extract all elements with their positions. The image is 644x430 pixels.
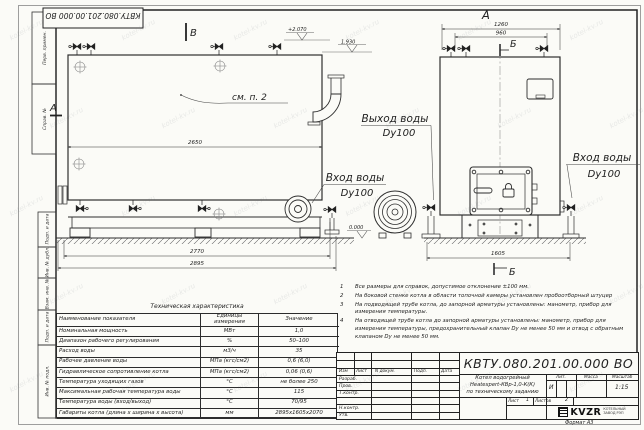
table-cell: °С xyxy=(201,388,259,398)
table-cell: МВт xyxy=(201,327,259,337)
note-text: На отводящей трубе котла до запорной арм… xyxy=(355,318,636,341)
margin-label: Взам. инв. № xyxy=(45,278,51,309)
kvzr-logo-word: KVZR xyxy=(570,407,601,418)
table-cell: МПа (кгс/см2) xyxy=(201,368,259,378)
notes-list: 1 Все размеры для справок, допустимое от… xyxy=(340,284,636,343)
view-label-a: А xyxy=(481,8,490,22)
product-name-line: Котел водогрейный xyxy=(475,375,529,382)
view-label-b: В xyxy=(190,28,197,39)
table-cell: м3/ч xyxy=(201,347,259,357)
col-header-name: Наименование показателя xyxy=(57,314,201,327)
ground-hatch-left xyxy=(56,238,354,244)
top-corner-stamp: КВТУ.080.201.00.000 ВО xyxy=(43,8,143,28)
tb-row-utv: Утв. xyxy=(339,413,349,418)
top-stamp-number: КВТУ.080.201.00.000 ВО xyxy=(45,11,140,20)
elevation-1930: 1.930 xyxy=(341,40,355,46)
title-block: Изм Лист N докум. Подп. Дата Разраб. Про… xyxy=(336,352,639,420)
elevation-2070: +2.070 xyxy=(288,27,307,33)
kvzr-logo: KVZR КОТЕЛЬНЫЙ ЗАВОД РЭП xyxy=(546,405,638,419)
margin-label: Подп. и дата xyxy=(45,213,51,244)
table-cell: мм xyxy=(201,409,259,419)
see-note-annotation: см. п. 2 xyxy=(180,93,288,103)
tb-mass-label: Масса xyxy=(584,375,598,380)
tb-sheet-label: Лист xyxy=(508,399,519,404)
valve-icon xyxy=(76,200,88,211)
col-header-value: Значение xyxy=(259,314,339,327)
table-cell: Расход воды xyxy=(57,347,201,357)
dim-1605: 1605 xyxy=(491,251,505,257)
note-number: 1 xyxy=(340,284,355,292)
margin-label: Справ. № xyxy=(42,108,48,130)
table-cell: Максимальная рабочая температура воды xyxy=(57,388,201,398)
dim-2650: 2650 xyxy=(188,140,202,146)
table-cell: не более 250 xyxy=(259,378,339,388)
tb-col-podp: Подп. xyxy=(414,369,427,374)
tech-table: Наименование показателя Единицы измерени… xyxy=(56,313,338,418)
margin-label: Перв. примен. xyxy=(42,31,48,65)
tb-scale-value: 1:15 xyxy=(615,384,628,391)
table-cell: Номинальная мощность xyxy=(57,327,201,337)
section-label-b-bottom: Б xyxy=(509,267,516,278)
dimensions xyxy=(58,24,570,271)
water-inlet-left-size: Dy100 xyxy=(341,188,374,199)
table-cell: °С xyxy=(201,378,259,388)
fan-volute xyxy=(374,191,416,238)
water-outlet-size: Dy100 xyxy=(383,128,416,139)
water-inlet-right-label: Вход воды xyxy=(573,152,632,164)
table-cell: % xyxy=(201,337,259,347)
table-cell: 0,6 (6,0) xyxy=(259,358,339,368)
tb-sheets-label: Листов xyxy=(535,399,551,404)
table-cell: Гидравлическое сопротивление котла xyxy=(57,368,201,378)
table-cell: 0,06 (0,6) xyxy=(259,368,339,378)
margin-label: Инв. № дубл. xyxy=(45,247,51,278)
control-panel xyxy=(527,79,553,99)
water-outlet-label: Выход воды xyxy=(362,113,429,125)
tb-col-izm: Изм xyxy=(339,369,348,374)
document-number: КВТУ.080.201.00.000 ВО xyxy=(459,353,638,374)
col-header-units: Единицы измерения xyxy=(201,314,259,327)
drawing-sheet: Перв. примен. Справ. № Подп. и дата Инв.… xyxy=(0,0,644,430)
note-number: 2 xyxy=(340,293,355,301)
table-cell: 50–100 xyxy=(259,337,339,347)
lifting-point-icon xyxy=(73,158,86,171)
valve-icon xyxy=(69,44,81,55)
tb-row-prov: Пров. xyxy=(339,384,352,389)
note-item: 2 На боковой стенке котла в области топо… xyxy=(340,293,636,301)
tb-col-data: Дата xyxy=(441,369,452,374)
margin-column xyxy=(32,12,56,418)
outlet-pipe-bend xyxy=(308,75,344,125)
margin-label: Инв. № подл. xyxy=(45,365,51,396)
note-item: 3 На подводящей трубе котла, до запорной… xyxy=(340,302,636,318)
table-cell: Температура уходящих газов xyxy=(57,378,201,388)
elevation-0000: 0.000 xyxy=(349,225,363,231)
product-name-line: по техническому заданию xyxy=(466,389,538,396)
tb-lit-label: Лит. xyxy=(556,375,566,380)
valve-icon xyxy=(324,207,336,218)
note-text: На подводящей трубе котла, до запорной а… xyxy=(355,302,636,318)
valve-icon xyxy=(129,200,141,211)
note-text: На боковой стенке котла в области топочн… xyxy=(355,293,636,301)
water-inlet-left-label: Вход воды xyxy=(326,172,385,184)
valve-icon xyxy=(536,46,548,57)
lifting-point-icon xyxy=(74,61,87,74)
table-cell: 35 xyxy=(259,347,339,357)
dim-2895: 2895 xyxy=(190,261,204,267)
tb-row-tkontr: Т.контр. xyxy=(339,391,359,396)
section-label-b-top: Б xyxy=(510,39,517,50)
note-text: Все размеры для справок, допустимое откл… xyxy=(355,284,636,292)
table-cell: 115 xyxy=(259,388,339,398)
note-number: 3 xyxy=(340,302,355,318)
table-cell: Температура воды (вход/выход) xyxy=(57,399,201,409)
boiler-body-side xyxy=(68,55,322,200)
tb-sheets-value: 2 xyxy=(565,398,568,403)
note-number: 4 xyxy=(340,318,355,341)
product-name: Котел водогрейный Heatexpert-КВр-1,0-К(К… xyxy=(459,374,546,397)
table-cell: Габариты котла (длина х ширина х высота) xyxy=(57,409,201,419)
tb-row-nkontr: Н.контр. xyxy=(339,406,360,411)
table-cell: 2895х1605х2070 xyxy=(259,409,339,419)
product-name-line: Heatexpert-КВр-1,0-К(К) xyxy=(470,382,535,389)
dim-960: 960 xyxy=(496,31,507,37)
valve-icon xyxy=(83,44,95,55)
water-inlet-right-size: Dy100 xyxy=(588,169,621,180)
tb-lit-value: И xyxy=(549,384,554,391)
margin-label: Подп. и дата xyxy=(45,311,51,342)
tb-scale-label: Масштаб xyxy=(612,375,632,380)
note-item: 4 На отводящей трубе котла до запорной а… xyxy=(340,318,636,341)
tb-col-list: Лист xyxy=(356,369,367,374)
table-cell: °С xyxy=(201,399,259,409)
valve-icon xyxy=(563,205,575,216)
see-note-text: см. п. 2 xyxy=(232,93,267,103)
note-item: 1 Все размеры для справок, допустимое от… xyxy=(340,284,636,292)
tb-col-doc: N докум. xyxy=(375,369,395,374)
valve-icon xyxy=(211,44,223,55)
water-outlet-stub xyxy=(422,205,440,238)
dim-1260: 1260 xyxy=(494,22,508,28)
tb-sheet-value: 1 xyxy=(526,398,529,403)
valve-icon xyxy=(269,44,281,55)
right-view-front xyxy=(440,46,579,238)
table-cell: МПа (кгс/см2) xyxy=(201,358,259,368)
margin-column-labels: Перв. примен. Справ. № Подп. и дата Инв.… xyxy=(42,31,51,396)
dim-2770: 2770 xyxy=(190,249,204,255)
table-cell: 70/95 xyxy=(259,399,339,409)
lifting-point-icon xyxy=(213,208,226,221)
sheet-format-note: Формат А3 xyxy=(565,420,593,426)
tb-row-razrab: Разраб. xyxy=(339,377,357,382)
section-label-a: А xyxy=(49,103,57,114)
lifting-point-icon xyxy=(214,60,227,73)
kvzr-logo-mark xyxy=(558,407,568,417)
valve-icon xyxy=(423,205,435,216)
table-cell: 1,0 xyxy=(259,327,339,337)
tech-table-title: Техническая характеристика xyxy=(56,303,338,310)
valve-icon xyxy=(198,200,210,211)
kvzr-logo-sub: КОТЕЛЬНЫЙ ЗАВОД РЭП xyxy=(603,408,625,416)
valve-icon xyxy=(443,46,455,57)
valve-icon xyxy=(458,46,470,57)
table-cell: Рабочее давление воды xyxy=(57,358,201,368)
burner-flange xyxy=(285,196,311,222)
water-inlet-stub xyxy=(560,201,579,238)
ground-hatch-right xyxy=(424,238,586,244)
furnace-door xyxy=(470,167,537,215)
table-cell: Диапазон рабочего регулирования xyxy=(57,337,201,347)
